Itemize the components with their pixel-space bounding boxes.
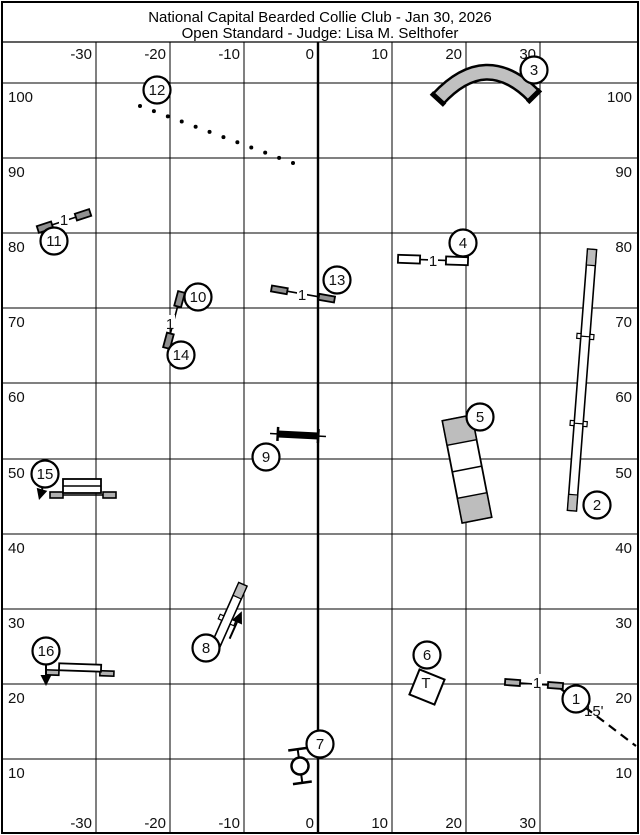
jump-wing xyxy=(398,255,420,264)
jump-wing xyxy=(46,670,59,675)
weave-pole xyxy=(138,104,142,108)
jump-wing xyxy=(75,209,91,220)
y-axis-label-right: 90 xyxy=(615,164,632,181)
x-axis-label-top: 20 xyxy=(445,46,462,63)
obstacle-number-13: 13 xyxy=(329,272,346,289)
y-axis-label-right: 40 xyxy=(615,540,632,557)
x-axis-label-top: 0 xyxy=(306,46,314,63)
event-title: National Capital Bearded Collie Club - J… xyxy=(148,9,492,26)
y-axis-label-right: 80 xyxy=(615,239,632,256)
wall-post xyxy=(276,427,279,441)
y-axis-label-left: 80 xyxy=(8,239,25,256)
x-axis-label-bottom: -30 xyxy=(70,815,92,832)
plank-support xyxy=(570,420,574,425)
weave-pole xyxy=(221,135,225,139)
obstacle-number-9: 9 xyxy=(262,449,270,466)
contact-zone xyxy=(586,249,596,266)
y-axis-label-right: 60 xyxy=(615,389,632,406)
x-axis-label-top: -10 xyxy=(218,46,240,63)
y-axis-label-left: 30 xyxy=(8,615,25,632)
x-axis-label-top: -20 xyxy=(144,46,166,63)
y-axis-label-right: 10 xyxy=(615,765,632,782)
tire-7 xyxy=(288,748,312,784)
y-axis-label-left: 20 xyxy=(8,690,25,707)
y-axis-label-left: 100 xyxy=(8,89,33,106)
contact-zone xyxy=(233,583,247,599)
y-axis-label-left: 70 xyxy=(8,314,25,331)
obstacle-number-15: 15 xyxy=(37,466,54,483)
y-axis-label-left: 90 xyxy=(8,164,25,181)
obstacle-number-11: 11 xyxy=(46,233,62,250)
obstacle-number-10: 10 xyxy=(190,289,207,306)
y-axis-label-right: 100 xyxy=(607,89,632,106)
obstacle-number-7: 7 xyxy=(316,736,324,753)
y-axis-label-left: 10 xyxy=(8,765,25,782)
jump-wing xyxy=(446,256,468,265)
obstacle-number-14: 14 xyxy=(173,347,190,364)
tire-ring xyxy=(290,756,309,775)
weave-pole xyxy=(277,156,281,160)
obstacle-number-3: 3 xyxy=(530,62,538,79)
course-svg: National Capital Bearded Collie Club - J… xyxy=(0,0,640,835)
aframe-5 xyxy=(442,415,491,523)
jump-wing xyxy=(100,671,114,676)
obstacle-number-6: 6 xyxy=(423,647,431,664)
weaves-12 xyxy=(138,104,295,165)
y-axis-label-right: 50 xyxy=(615,465,632,482)
bar-label: 1 xyxy=(533,675,541,692)
dogwalk-plank xyxy=(567,249,596,511)
weave-pole xyxy=(194,125,198,129)
obstacle-number-8: 8 xyxy=(202,640,210,657)
y-axis-label-left: 40 xyxy=(8,540,25,557)
y-axis-label-right: 20 xyxy=(615,690,632,707)
y-axis-label-left: 60 xyxy=(8,389,25,406)
obstacle-number-1: 1 xyxy=(572,691,580,708)
jump-wing xyxy=(548,682,563,689)
bar-label: 1 xyxy=(166,316,174,333)
obstacle-number-12: 12 xyxy=(149,82,166,99)
x-axis-label-bottom: 0 xyxy=(306,815,314,832)
jump-wing xyxy=(318,294,335,303)
direction-arrowhead xyxy=(37,488,48,500)
jump-wing xyxy=(50,492,63,498)
wall-body xyxy=(278,430,318,439)
class-judge-title: Open Standard - Judge: Lisa M. Selthofer xyxy=(182,25,459,42)
x-axis-label-bottom: -10 xyxy=(218,815,240,832)
obstacle-number-2: 2 xyxy=(593,497,601,514)
plank-support xyxy=(577,333,581,338)
x-axis-label-bottom: 20 xyxy=(445,815,462,832)
plank-support xyxy=(590,334,594,339)
weave-pole xyxy=(180,120,184,124)
obstacle-number-5: 5 xyxy=(476,409,484,426)
wall-9 xyxy=(270,427,327,444)
y-axis-label-right: 30 xyxy=(615,615,632,632)
panel-16 xyxy=(46,663,114,677)
spread-15 xyxy=(50,479,116,498)
bar-label: 1 xyxy=(60,212,68,229)
x-axis-label-top: 10 xyxy=(371,46,388,63)
weave-pole xyxy=(291,161,295,165)
obstacle-number-4: 4 xyxy=(459,235,467,252)
y-axis-label-left: 50 xyxy=(8,465,25,482)
jump-wing xyxy=(271,285,288,294)
x-axis-label-bottom: 10 xyxy=(371,815,388,832)
obstacle-number-16: 16 xyxy=(38,643,55,660)
weave-pole xyxy=(208,130,212,134)
weave-pole xyxy=(152,109,156,113)
table-label: T xyxy=(421,675,430,692)
jump-wing xyxy=(174,291,185,307)
weave-pole xyxy=(263,151,267,155)
contact-zone xyxy=(457,493,491,523)
plank-support xyxy=(583,421,587,426)
y-axis-label-right: 70 xyxy=(615,314,632,331)
weave-pole xyxy=(235,140,239,144)
bar-label: 1 xyxy=(298,287,306,304)
jump-wing xyxy=(505,679,520,686)
x-axis-label-bottom: -20 xyxy=(144,815,166,832)
distance-annotation: 15' xyxy=(584,703,604,720)
course-map: National Capital Bearded Collie Club - J… xyxy=(0,0,640,835)
x-axis-label-bottom: 30 xyxy=(519,815,536,832)
weave-pole xyxy=(166,114,170,118)
dogwalk-2 xyxy=(563,249,600,512)
tire-frame-bar xyxy=(288,748,307,751)
panel-bar xyxy=(59,663,101,671)
tire-frame-bar xyxy=(293,782,312,785)
bar-label: 1 xyxy=(429,253,437,270)
map-border xyxy=(2,2,638,833)
jump-wing xyxy=(103,492,116,498)
weave-pole xyxy=(249,145,253,149)
contact-zone xyxy=(567,494,577,511)
x-axis-label-top: -30 xyxy=(70,46,92,63)
